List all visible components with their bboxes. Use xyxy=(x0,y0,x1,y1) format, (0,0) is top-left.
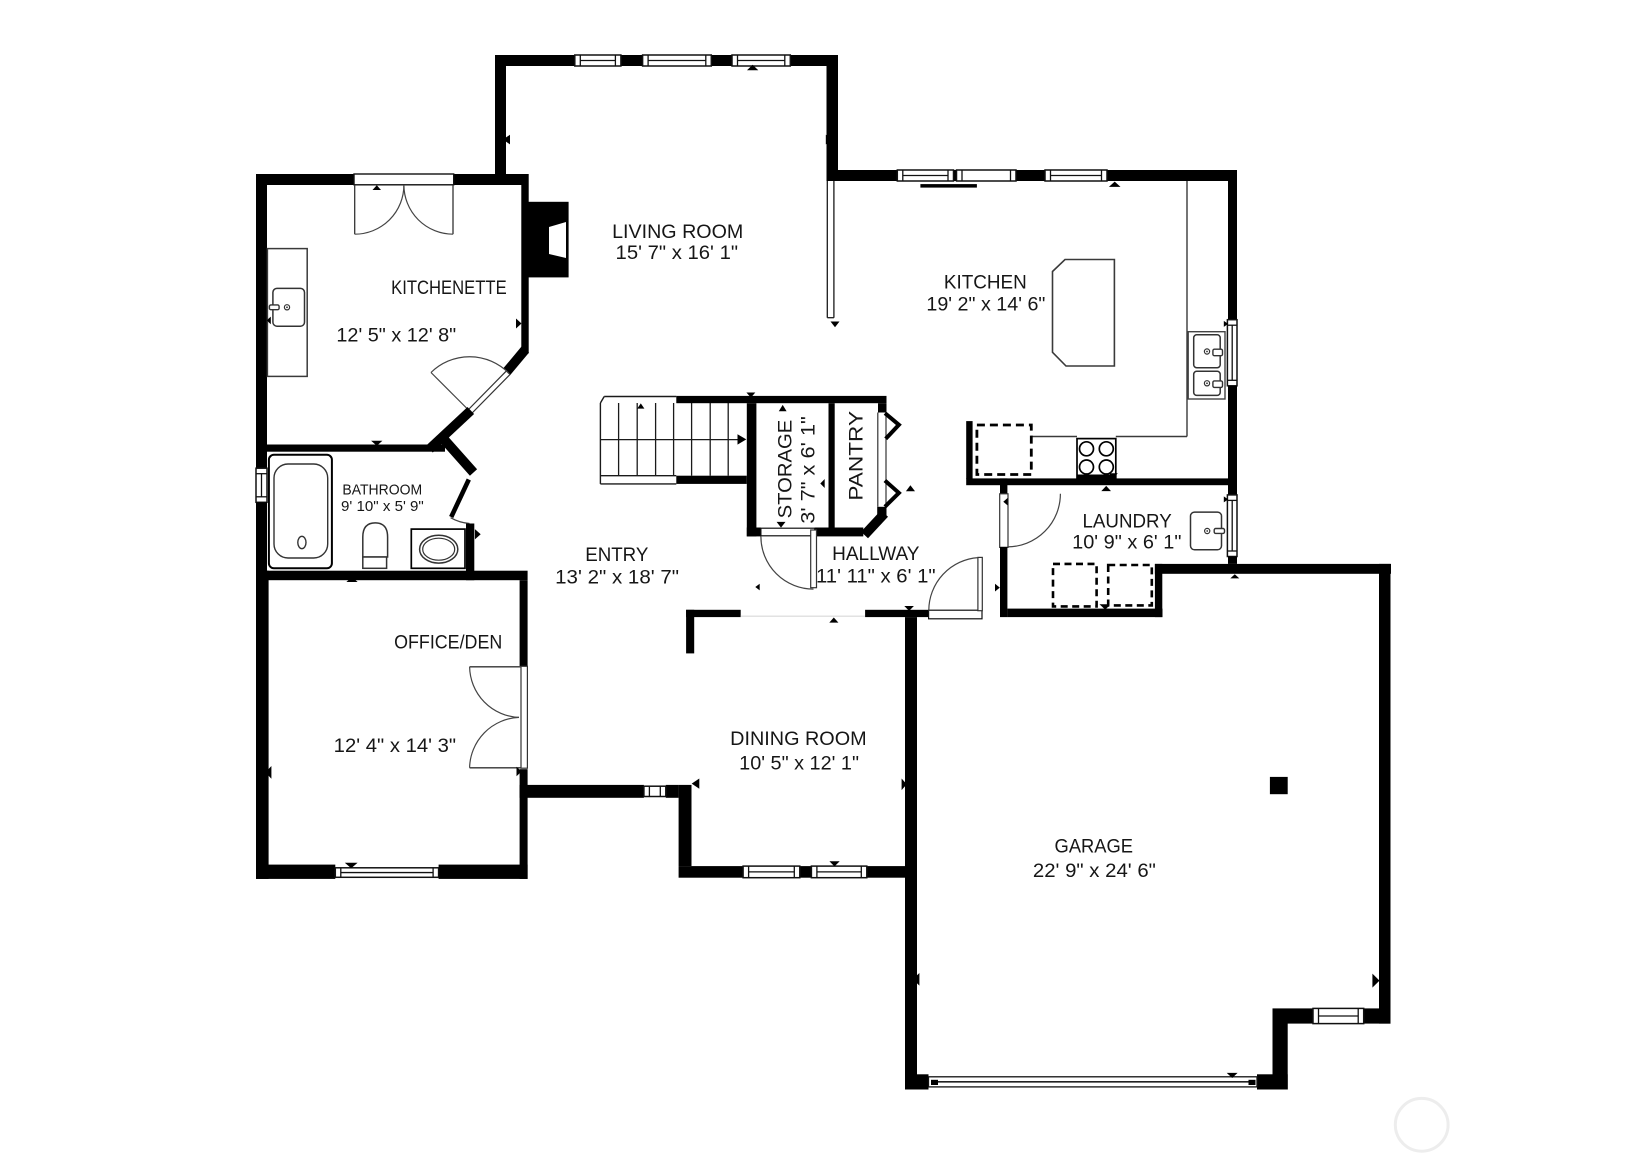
svg-text:12' 4" x 14' 3": 12' 4" x 14' 3" xyxy=(334,735,456,757)
svg-text:3' 7" x 6' 1": 3' 7" x 6' 1" xyxy=(797,416,819,524)
svg-text:STORAGE: STORAGE xyxy=(774,420,796,519)
svg-text:19' 2" x 14' 6": 19' 2" x 14' 6" xyxy=(926,294,1045,316)
svg-text:HALLWAY: HALLWAY xyxy=(832,543,919,565)
svg-text:15' 7" x 16' 1": 15' 7" x 16' 1" xyxy=(616,242,739,264)
svg-text:KITCHENETTE: KITCHENETTE xyxy=(391,277,507,299)
svg-text:9' 10" x 5' 9": 9' 10" x 5' 9" xyxy=(341,498,424,515)
svg-text:22' 9" x 24' 6": 22' 9" x 24' 6" xyxy=(1033,860,1156,882)
svg-text:BATHROOM: BATHROOM xyxy=(342,481,422,498)
svg-text:GARAGE: GARAGE xyxy=(1055,836,1134,858)
svg-text:DINING ROOM: DINING ROOM xyxy=(730,728,867,750)
svg-text:LIVING ROOM: LIVING ROOM xyxy=(612,221,743,243)
svg-text:KITCHEN: KITCHEN xyxy=(944,272,1027,294)
svg-text:11' 11" x 6' 1": 11' 11" x 6' 1" xyxy=(816,566,936,588)
svg-text:13' 2" x 18' 7": 13' 2" x 18' 7" xyxy=(555,567,679,589)
svg-text:ENTRY: ENTRY xyxy=(585,544,648,566)
svg-text:10' 9" x 6' 1": 10' 9" x 6' 1" xyxy=(1072,532,1181,554)
svg-text:10' 5" x 12' 1": 10' 5" x 12' 1" xyxy=(739,752,859,774)
svg-text:OFFICE/DEN: OFFICE/DEN xyxy=(394,632,502,654)
svg-text:LAUNDRY: LAUNDRY xyxy=(1083,510,1172,532)
svg-text:12' 5" x 12' 8": 12' 5" x 12' 8" xyxy=(336,325,456,347)
svg-text:PANTRY: PANTRY xyxy=(846,411,868,501)
